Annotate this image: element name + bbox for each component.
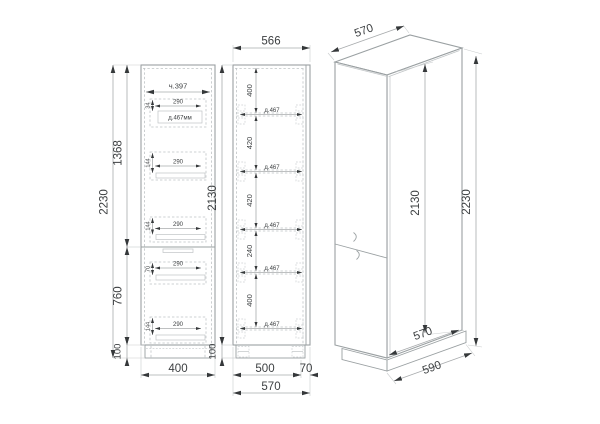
shelf-depth-label: д.467 [264,108,280,114]
dim-side-upper-height: 1368 [113,65,142,247]
shelf-depth-label: д.467 [264,266,280,272]
dim-label: 590 [421,359,443,377]
dim-side-total-height: 2230 [99,65,146,358]
drawer-depth-label: д.467мм [168,116,191,122]
dim-label: 500 [255,363,274,375]
drawer-width-label: 290 [173,100,184,106]
drawer-width-label: 290 [173,322,184,328]
dim-label: 1368 [113,140,125,166]
section-height-label: 240 [245,245,254,258]
section-height-label: 420 [245,137,254,150]
drawer-height-label: 144 [146,221,152,230]
dim-label: ч.397 [169,82,188,91]
side-view-plinth [145,345,211,358]
side-section-view: ч.397 290 34 д.467мм 290 144 290 [99,65,216,378]
dim-label: 2130 [207,185,219,211]
section-height-label: 400 [245,84,254,97]
drawer-height-label: 34 [146,102,152,108]
drawer-width-label: 290 [173,262,184,268]
dim-side-base-width: 400 [141,347,215,378]
drawer-width-label: 290 [173,160,184,166]
iso-front-face [335,62,387,358]
dim-front-bottom-widths: 500 70 570 [233,347,316,396]
dim-iso-total-height: 2230 [461,49,482,347]
front-view-foot-left [238,347,249,358]
dim-label: 570 [261,381,280,393]
dim-side-lower-height: 760 [113,247,146,345]
dim-label: 70 [300,363,313,375]
drawer-height-label: 144 [146,322,152,331]
dim-label: 566 [261,36,280,48]
front-view-foot-right [292,347,303,358]
shelf-depth-label: д.467 [264,165,280,171]
dim-front-top-width: 566 [233,36,310,63]
dim-label: 2230 [461,189,473,215]
front-section-view: д.467 д.467 д.467 д.467 [207,36,316,397]
drawer-height-label: 144 [146,158,152,167]
cabinet-technical-drawing: ч.397 290 34 д.467мм 290 144 290 [0,0,600,424]
dim-side-plinth-height: 100 [113,337,128,366]
dim-label: 100 [208,344,219,360]
dim-label: 760 [113,286,125,305]
iso-side-face [387,48,462,358]
isometric-view: 570 2130 2230 570 590 [328,22,482,384]
drawer-width-label: 290 [173,222,184,228]
shelf-depth-label: д.467 [264,322,280,328]
drawer-height-label: 70 [146,266,152,272]
section-height-label: 420 [245,194,254,207]
dim-label: 2230 [99,189,111,215]
section-height-label: 400 [245,294,254,307]
dim-label: 400 [168,363,187,375]
dim-label: 2130 [410,190,422,216]
shelf-depth-label: д.467 [264,223,280,229]
dim-label: 100 [113,344,124,360]
